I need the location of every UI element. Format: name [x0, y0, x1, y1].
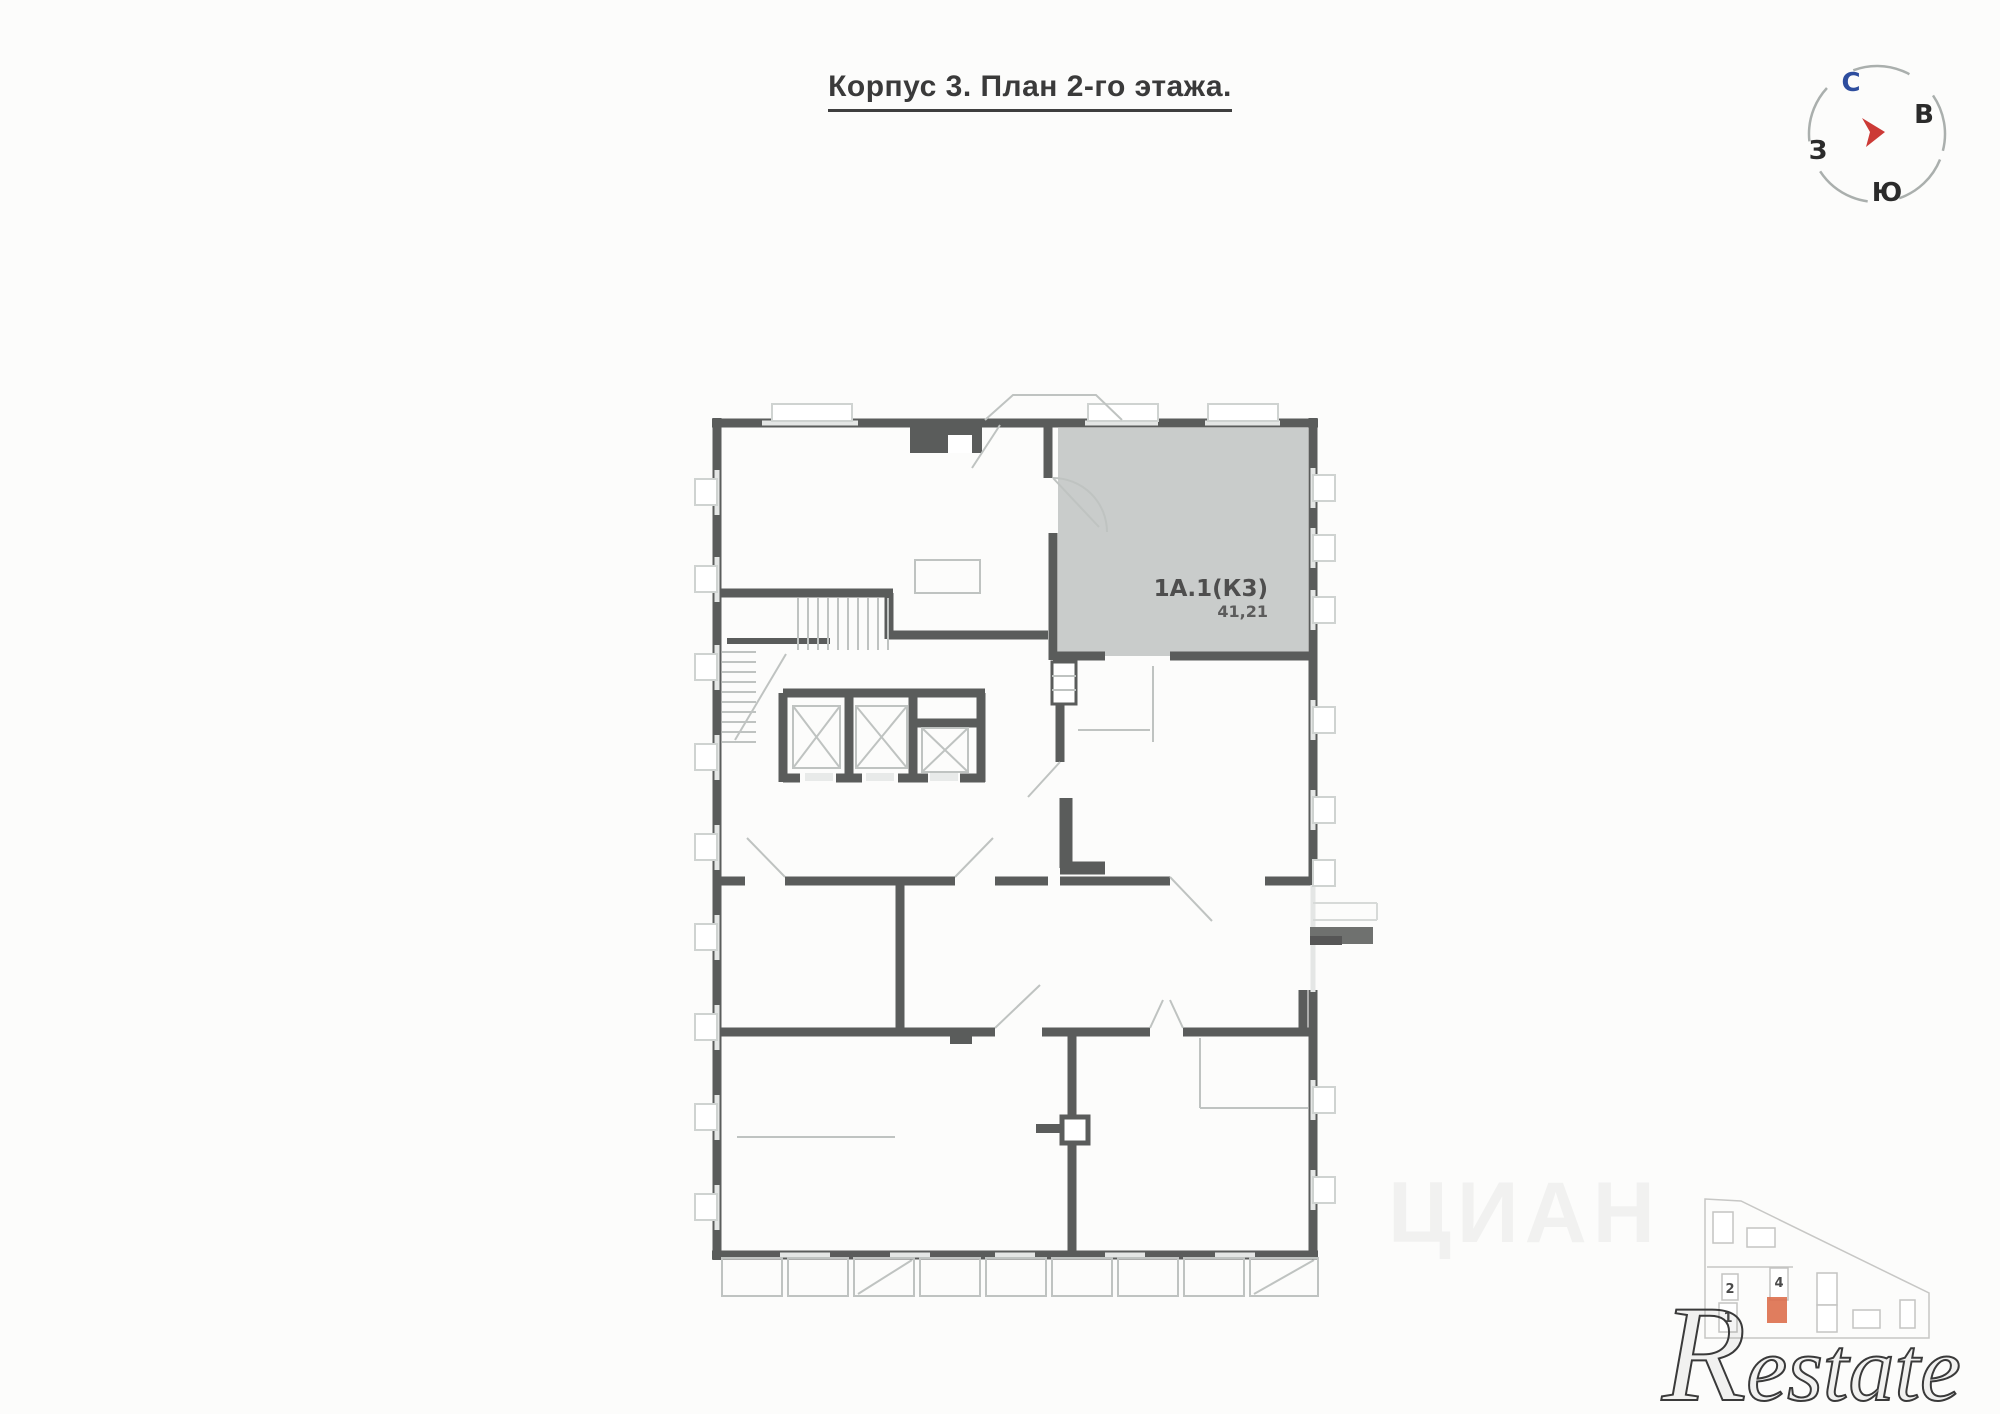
- compass-arrow-icon: [1862, 118, 1885, 147]
- highlighted-unit-area: [1058, 428, 1308, 656]
- compass-east-label: В: [1914, 100, 1934, 130]
- compass-north-label: С: [1841, 68, 1860, 98]
- vestibule-notch: [948, 435, 972, 453]
- brand-watermark: Restate: [1662, 1268, 2000, 1408]
- floor-plan: 1А.1(К3) 41,21: [695, 395, 1377, 1296]
- elevators: [793, 706, 968, 781]
- page-title-text: Корпус 3. План 2-го этажа.: [828, 70, 1232, 112]
- compass-south-label: Ю: [1872, 178, 1903, 208]
- shaft-fixtures: [950, 662, 1088, 1143]
- page: 1А.1(К3) 41,21 С В Ю З: [0, 0, 2000, 1414]
- balconies: [722, 1258, 1318, 1296]
- unit-area-label: 41,21: [1217, 602, 1268, 621]
- right-protrusion: [1310, 903, 1377, 945]
- compass: С В Ю З: [1788, 45, 1965, 222]
- bathroom-walls: [1060, 798, 1105, 868]
- floor-plan-drawing: 1А.1(К3) 41,21 С В Ю З: [0, 0, 2000, 1414]
- portal-watermark: ЦИАН: [1388, 1164, 1661, 1263]
- page-title: Корпус 3. План 2-го этажа.: [760, 70, 1300, 112]
- unit-id-label: 1А.1(К3): [1154, 576, 1268, 602]
- compass-west-label: З: [1809, 136, 1827, 166]
